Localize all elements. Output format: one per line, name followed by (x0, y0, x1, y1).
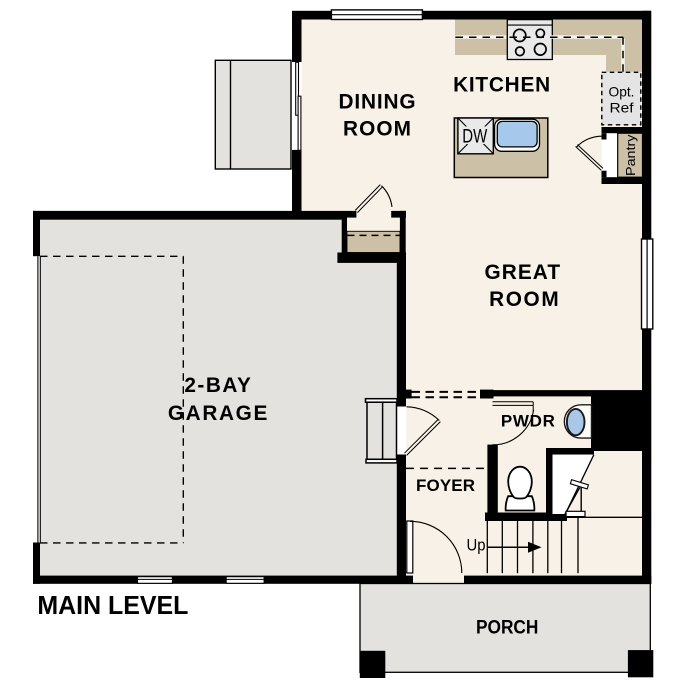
svg-text:GREAT: GREAT (485, 261, 561, 284)
svg-text:ROOM: ROOM (489, 288, 559, 311)
svg-text:PWDR: PWDR (501, 411, 555, 430)
svg-text:Pantry: Pantry (624, 134, 638, 176)
svg-text:ROOM: ROOM (343, 118, 411, 141)
svg-text:DW: DW (462, 127, 487, 148)
svg-text:PORCH: PORCH (476, 617, 539, 638)
svg-text:KITCHEN: KITCHEN (453, 74, 550, 97)
svg-text:FOYER: FOYER (416, 476, 475, 495)
svg-text:2-BAY: 2-BAY (184, 374, 251, 397)
svg-text:MAIN LEVEL: MAIN LEVEL (37, 590, 188, 620)
svg-text:Ref: Ref (610, 100, 634, 116)
svg-text:DINING: DINING (339, 91, 416, 114)
svg-text:Opt.: Opt. (609, 83, 635, 99)
svg-text:Up: Up (467, 537, 486, 555)
